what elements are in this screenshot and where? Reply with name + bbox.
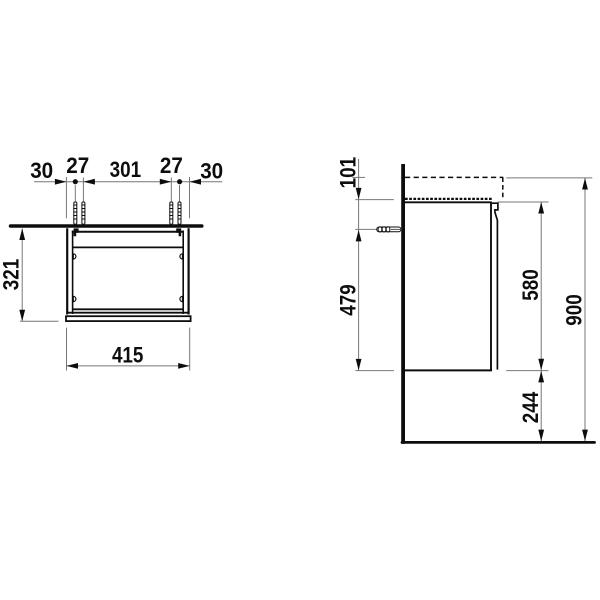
svg-text:101: 101 bbox=[336, 157, 361, 189]
svg-text:321: 321 bbox=[0, 259, 24, 291]
svg-text:30: 30 bbox=[30, 158, 53, 183]
svg-text:900: 900 bbox=[562, 294, 587, 326]
svg-text:27: 27 bbox=[66, 153, 89, 178]
svg-text:479: 479 bbox=[336, 284, 361, 316]
svg-text:27: 27 bbox=[160, 153, 183, 178]
svg-text:580: 580 bbox=[518, 269, 543, 301]
svg-text:415: 415 bbox=[112, 342, 144, 367]
svg-text:301: 301 bbox=[110, 157, 142, 182]
svg-text:30: 30 bbox=[200, 159, 223, 184]
svg-text:244: 244 bbox=[518, 391, 543, 423]
